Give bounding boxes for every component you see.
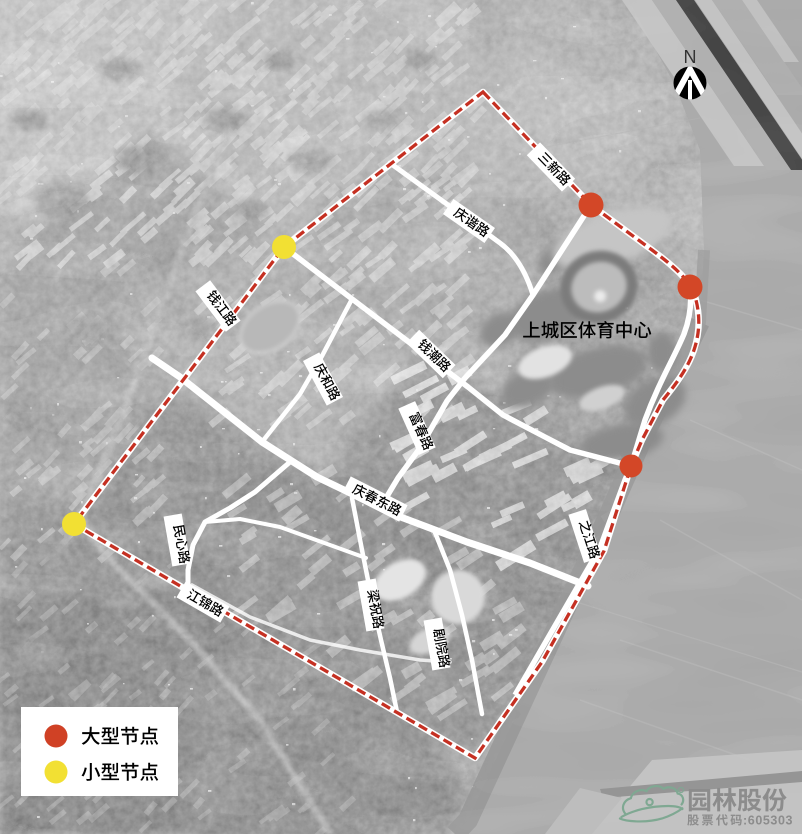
- svg-text::605303: :605303: [743, 813, 793, 827]
- svg-text:N: N: [684, 47, 697, 67]
